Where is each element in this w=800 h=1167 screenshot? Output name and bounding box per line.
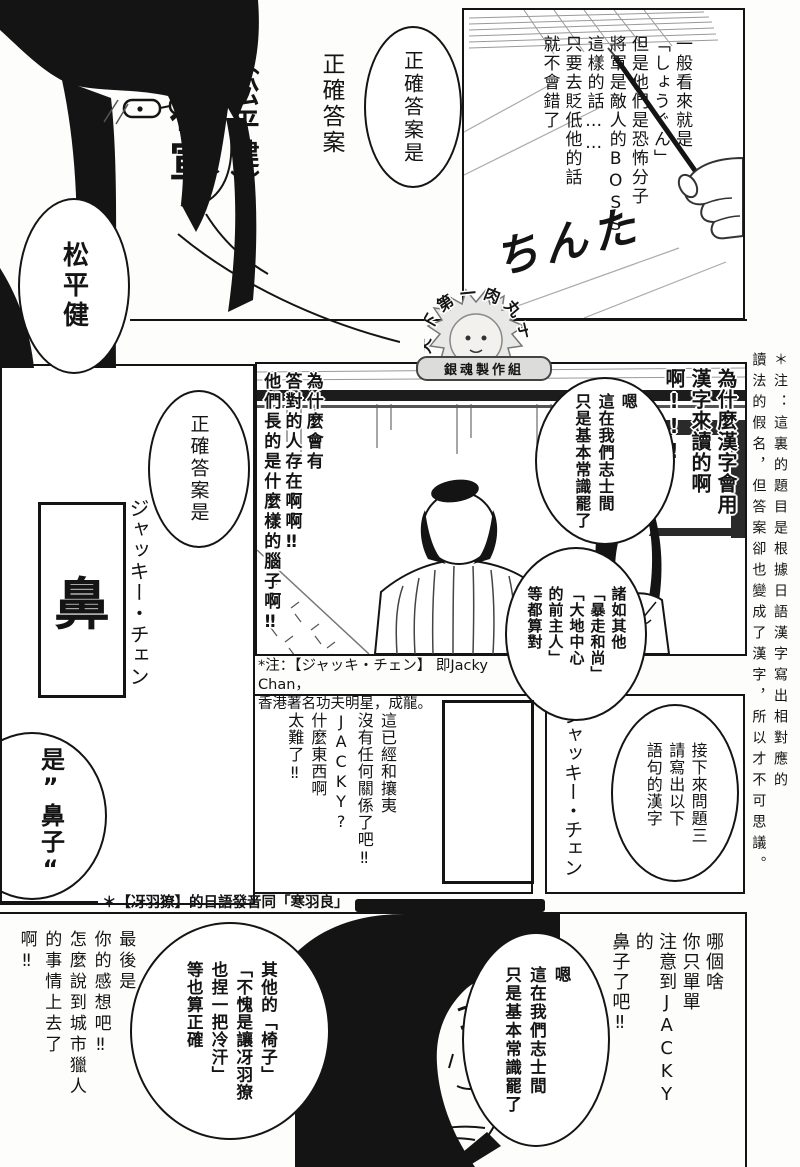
boxed-answer-nose: 鼻: [38, 502, 126, 698]
speech-bubble-common-sense-bottom: 嗯 這在我們志士間 只是基本常識罷了: [462, 932, 610, 1147]
caption-black-bar: [355, 899, 545, 912]
bubble-correct-answer-middle-text: 正確答案是: [186, 414, 213, 524]
speech-bubble-question-three: 接下來問題三 請寫出以下 語句的漢字: [611, 704, 739, 882]
panel-blank-answer: 這已經和攘夷 沒有任何關係了吧‼ JACKY? 什麼東西啊 太難了‼: [253, 694, 533, 894]
jackie-chan-caption-middle: ジャッキー・チェン: [124, 498, 153, 698]
bubble-common-sense-middle-text: 嗯 這在我們志士間 只是基本常識罷了: [570, 393, 640, 529]
shout-nothing-to-do-with-joui: 這已經和攘夷 沒有任何關係了吧‼ JACKY? 什麼東西啊 太難了‼: [283, 712, 399, 880]
caption-ryo-leader-line: [0, 901, 98, 903]
retort-final-impressions: 最後是 你的感想吧‼ 怎麼說到城市獵人 的事情上去了啊‼: [14, 930, 137, 1100]
bubble-examples-text: 諸如其他 「暴走和尚」 「大地中心 的前主人」 等都算對: [524, 586, 629, 682]
bubble-nose-text: 是”鼻子“: [34, 747, 69, 885]
boxed-answer-nose-text: 鼻: [54, 560, 110, 641]
speech-bubble-nose: 是”鼻子“: [0, 732, 107, 900]
correct-answer-label: 正確答案: [314, 52, 348, 162]
manga-page: 松平健 将軍 ︵松平健︶ 正確答案 正確答案是 一般看來就是 「しょう: [0, 0, 800, 1167]
speech-bubble-correct-answer-top: 正確答案是: [364, 26, 462, 188]
bubble-question-three-text: 接下來問題三 請寫出以下 語句的漢字: [641, 742, 708, 844]
scanlation-group-badge: 銀魂製作組: [416, 356, 552, 381]
caption-jacky-chan-note: *注：【ジャッキ・チェン】 即Jacky Chan， 香港著名功夫明星，成龍。: [258, 657, 538, 714]
bubble-matsudaira-text: 松平健: [56, 241, 93, 331]
speech-bubble-matsudaira: 松平健: [18, 198, 130, 374]
panel-answer-sheet: 一般看來就是 「しょうぐん」 但是他們是恐怖分子 將軍是敵人的BOSS 這樣的話…: [462, 8, 745, 320]
margin-translator-note: ＊注：這裏的題目是根據日語漢字寫出相對應的 讀法的假名，但答案卻也變成了漢字，所…: [744, 352, 790, 912]
caption-ryo-saeba-note: ＊【冴羽獠】的日語發音同「寒羽良」: [102, 894, 349, 913]
panel-question-three: 接下來問題三 請寫出以下 語句的漢字 ジャッキー・チェン: [545, 694, 745, 894]
shout-how-do-they-answer: 為什麼會有 答對的人存在啊啊‼ 他們長的是什麼樣的腦子啊‼: [259, 372, 323, 650]
answer-annotation-text: ︵松平健︶: [222, 46, 264, 226]
speech-bubble-other-answers: 其他的「椅子」 「不愧是讓冴羽獠 也捏一把冷汗」 等也算正確: [130, 922, 330, 1140]
jackie-chan-caption-question: ジャッキー・チェン: [559, 706, 586, 891]
bubble-correct-answer-top-text: 正確答案是: [399, 50, 428, 165]
blank-answer-box: [442, 700, 534, 884]
speech-bubble-common-sense-middle: 嗯 這在我們志士間 只是基本常識罷了: [535, 377, 675, 545]
bubble-common-sense-bottom-text: 嗯 這在我們志士間 只是基本常識罷了: [499, 966, 573, 1114]
retort-jacky-nose: 哪個啥 你只單單 注意到JACKY的 鼻子了吧‼: [608, 932, 725, 1122]
panel-nose-answer: 正確答案是 ジャッキー・チェン 鼻 是”鼻子“: [0, 364, 255, 905]
speech-bubble-correct-answer-middle: 正確答案是: [148, 390, 250, 548]
panel-classroom-scene: 為什麼會有 答對的人存在啊啊‼ 他們長的是什麼樣的腦子啊‼ 為什麼漢字會用 漢字…: [255, 362, 747, 656]
bottom-row-right-border: [745, 912, 747, 1167]
bubble-other-answers-text: 其他的「椅子」 「不愧是讓冴羽獠 也捏一把冷汗」 等也算正確: [181, 961, 280, 1101]
answer-shogun-text: 将軍: [156, 86, 222, 206]
